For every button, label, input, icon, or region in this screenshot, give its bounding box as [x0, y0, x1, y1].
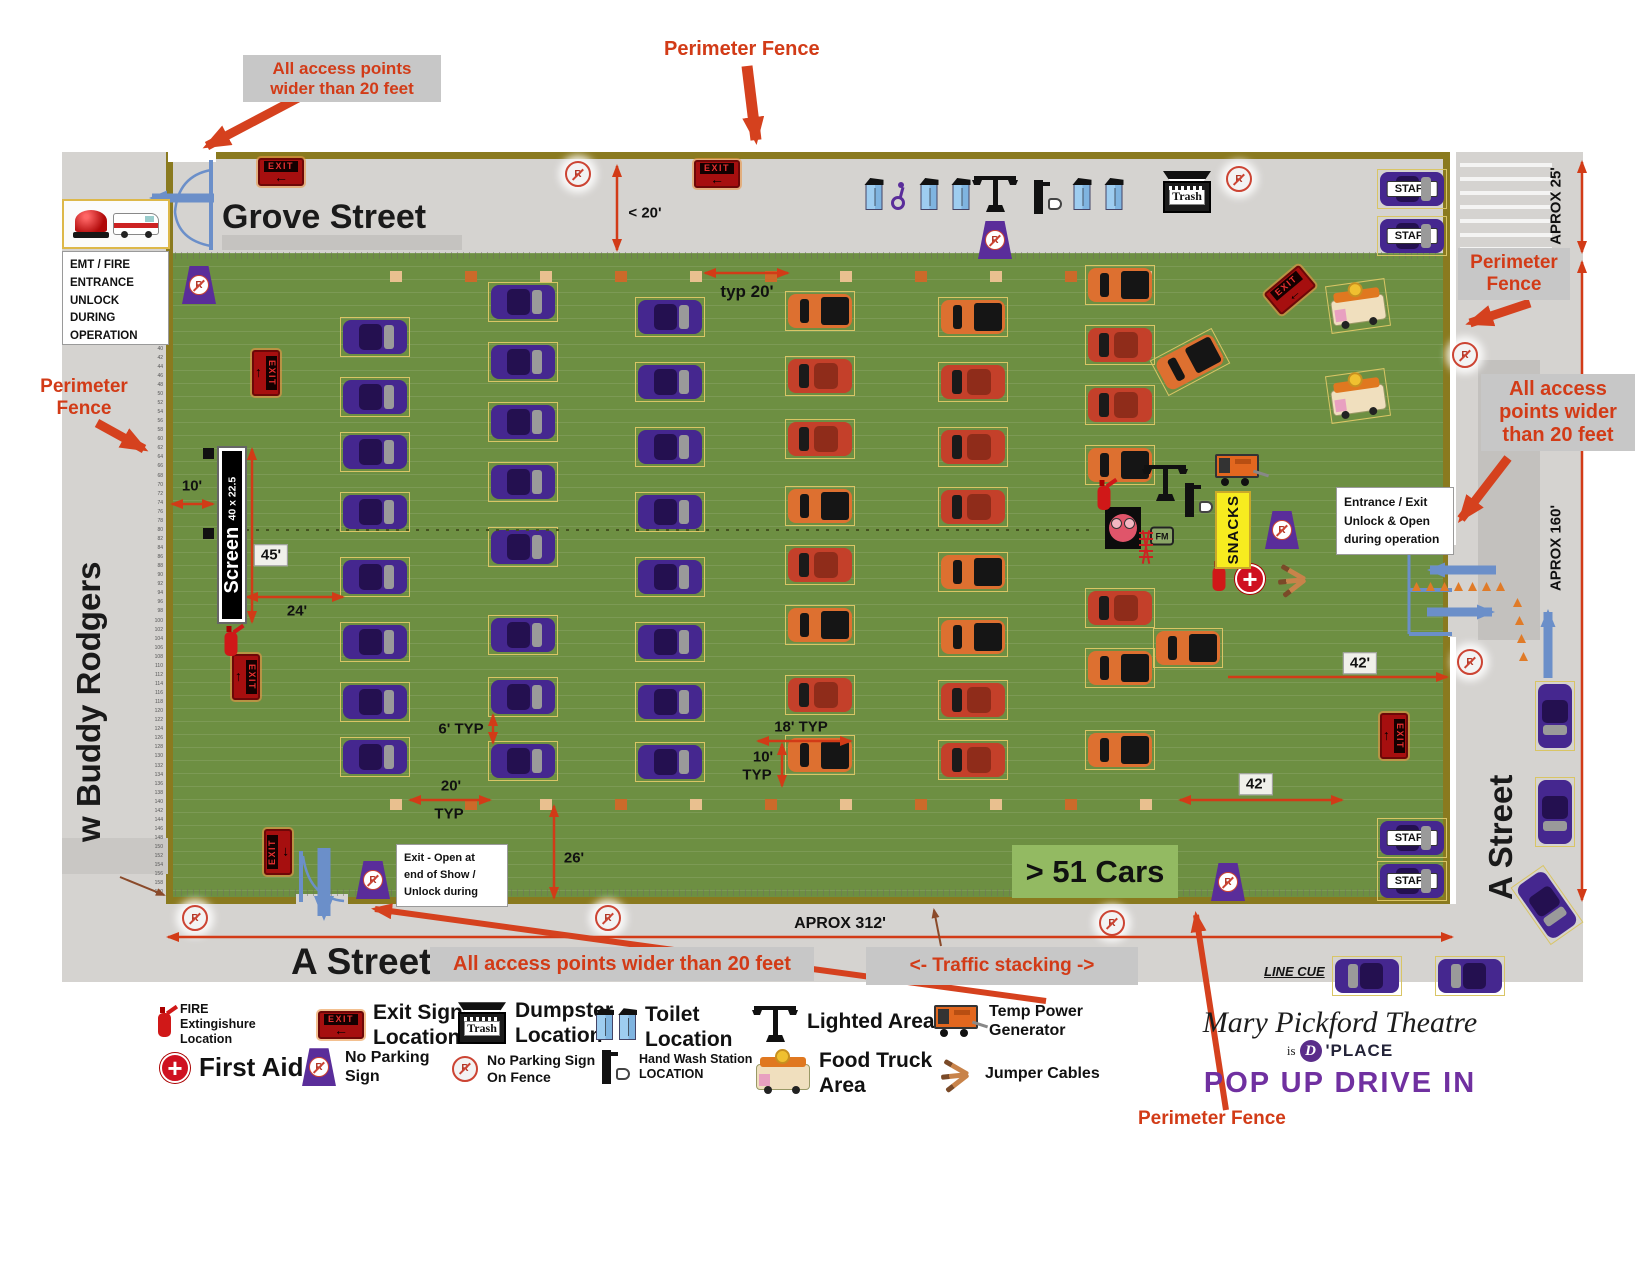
car-body [343, 740, 407, 774]
legend-item-exit-sign: EXIT←Exit Sign Location [318, 1000, 463, 1050]
dimension-label: 18' TYP [774, 719, 828, 736]
car-body [343, 685, 407, 719]
parked-car [340, 377, 410, 417]
car-body [1088, 651, 1152, 685]
fire-ext-location [1213, 567, 1226, 591]
wheelchair-location [888, 182, 912, 210]
food-truck [1325, 278, 1391, 334]
car-body [1088, 733, 1152, 767]
generator-icon [1215, 454, 1261, 486]
parked-car [938, 487, 1008, 527]
street-label-a-right: A Street [1482, 750, 1520, 900]
parked-car [938, 297, 1008, 337]
toilet-icon [1106, 184, 1123, 210]
no-parking-fence-icon: R [452, 1056, 478, 1082]
staff-label: STAFF [1387, 228, 1438, 244]
no-parking-sign-icon: R [302, 1048, 336, 1086]
parked-car [635, 492, 705, 532]
emt-fire-entrance-note: EMT / FIRE ENTRANCE UNLOCK DURING OPERAT… [62, 251, 169, 345]
parked-car [1153, 628, 1223, 668]
legend-label: FIRE Extingishure Location [180, 1002, 256, 1047]
road-marking [222, 235, 462, 250]
no-parking-fence-icon: R [452, 1056, 478, 1082]
first-aid-icon: + [160, 1053, 190, 1083]
fire-ext-location [225, 632, 238, 656]
car-body [941, 620, 1005, 654]
car-body [491, 680, 555, 714]
staff-label: STAFF [1387, 830, 1438, 846]
car-body [788, 738, 852, 772]
parked-car [488, 677, 558, 717]
brand-block: Mary Pickford Theatre is D 'PLACE POP UP… [1190, 1008, 1490, 1100]
parked-car [340, 557, 410, 597]
brand-is: is [1287, 1043, 1296, 1059]
row-marker [540, 271, 552, 282]
light-pole-location [972, 172, 1018, 212]
car-body [1335, 959, 1399, 993]
jumpers-location [1269, 563, 1313, 595]
brand-title: Mary Pickford Theatre [1190, 1008, 1490, 1038]
parked-car [785, 419, 855, 459]
car-body [638, 495, 702, 529]
legend-item-no-parking-fence: RNo Parking Sign On Fence [452, 1052, 595, 1086]
fire-extinguisher-icon [225, 632, 238, 656]
parked-car [488, 741, 558, 781]
dimension-label: 6' TYP [438, 721, 483, 738]
dimension-label: APROX 312' [794, 915, 886, 933]
parked-car [635, 622, 705, 662]
car-body [638, 560, 702, 594]
car-count-badge: > 51 Cars [1012, 845, 1178, 898]
row-marker [390, 271, 402, 282]
left-ruler: 2022242628303234363840424446485052545658… [141, 256, 163, 896]
car-body [1088, 328, 1152, 362]
toilet-location [953, 184, 970, 210]
row-marker [390, 799, 402, 810]
no-parking-fence-icon: R [1226, 166, 1252, 192]
parked-car [488, 402, 558, 442]
exit-sign: EXIT← [1380, 713, 1408, 759]
row-marker [990, 271, 1002, 282]
parked-car [1535, 777, 1575, 847]
parked-car [635, 362, 705, 402]
legend-item-toilet2: Toilet Location [596, 1002, 733, 1052]
fire-extinguisher-icon [158, 1013, 171, 1037]
no-parking-fence-sign: R [1099, 910, 1125, 936]
car-body [941, 743, 1005, 777]
row-marker [840, 271, 852, 282]
parked-car [1085, 730, 1155, 770]
label-access-right: All access points wider than 20 feet [1481, 374, 1635, 451]
car-body: STAFF [1380, 172, 1444, 206]
row-marker [915, 271, 927, 282]
row-marker [615, 799, 627, 810]
legend-item-trash: TrashDumpster Location [458, 998, 613, 1048]
label-perimeter-bottom: Perimeter Fence [1138, 1108, 1286, 1130]
no-parking-sign: R [1265, 511, 1299, 549]
toilet-location [1074, 184, 1091, 210]
screen-label: Screen [221, 527, 244, 594]
car-body [1438, 959, 1502, 993]
dimension-label: APROX 160' [1548, 505, 1565, 591]
parked-car [488, 342, 558, 382]
generator-icon [934, 1005, 980, 1037]
car-body [1156, 631, 1220, 665]
parked-car [785, 486, 855, 526]
legend-item-food-truck: Food Truck Area [756, 1048, 932, 1098]
car-body [638, 430, 702, 464]
parked-car [635, 742, 705, 782]
toilet-icon [953, 184, 970, 210]
brand-subtitle: POP UP DRIVE IN [1190, 1067, 1490, 1100]
light-pole-icon [752, 1002, 798, 1042]
exit-sign-icon: EXIT← [1380, 713, 1408, 759]
car-body [941, 430, 1005, 464]
no-parking-sign-icon: R [978, 221, 1012, 259]
parked-car [785, 545, 855, 585]
car-body [1538, 684, 1572, 748]
staff-car: STAFF [1377, 216, 1447, 256]
toilet-icon [866, 184, 883, 210]
row-marker [690, 271, 702, 282]
parked-car [340, 317, 410, 357]
exit-sign: EXIT← [258, 158, 304, 186]
legend-label: Temp Power Generator [989, 1002, 1083, 1040]
car-body [788, 359, 852, 393]
car-body [941, 683, 1005, 717]
parked-car [785, 605, 855, 645]
label-perimeter-top: Perimeter Fence [664, 38, 820, 61]
fire-ext-location [1098, 486, 1111, 510]
legend-item-no-parking: RNo Parking Sign [302, 1048, 429, 1086]
row-marker [1065, 271, 1077, 282]
car-body [491, 530, 555, 564]
staff-label: STAFF [1387, 873, 1438, 889]
row-marker [465, 799, 477, 810]
parked-car [1085, 648, 1155, 688]
car-body [788, 422, 852, 456]
no-parking-fence-icon: R [1452, 342, 1478, 368]
parked-car [635, 682, 705, 722]
car-body [343, 380, 407, 414]
dumpster-icon: Trash [458, 1002, 506, 1044]
hand-wash-location [1032, 180, 1062, 214]
snacks-label: SNACKS [1225, 495, 1242, 564]
food-truck-icon [756, 1052, 810, 1094]
dimension-label: 20' [441, 778, 461, 795]
legend-item-light-pole: Lighted Area [752, 1002, 935, 1042]
car-body [1088, 591, 1152, 625]
car-body [788, 678, 852, 712]
car-body: STAFF [1380, 821, 1444, 855]
parked-car [340, 682, 410, 722]
row-marker [465, 271, 477, 282]
parked-car [938, 740, 1008, 780]
parked-car [488, 282, 558, 322]
no-parking-sign-icon: R [356, 861, 390, 899]
legend-item-hand-wash: Hand Wash Station LOCATION [600, 1050, 752, 1084]
parked-car [938, 552, 1008, 592]
dimension-label: typ 20' [720, 282, 773, 302]
parked-car [785, 291, 855, 331]
car-body: STAFF [1380, 219, 1444, 253]
label-access-top-left: All access points wider than 20 feet [243, 55, 441, 102]
exit-open-note: Exit - Open at end of Show / Unlock duri… [396, 844, 508, 907]
car-body [491, 285, 555, 319]
row-marker [990, 799, 1002, 810]
legend-label: Toilet Location [645, 1002, 733, 1052]
car-body [1538, 780, 1572, 844]
ambulance-icon [113, 213, 159, 235]
no-parking-icon: R [302, 1048, 336, 1086]
light-pole-icon [752, 1002, 798, 1042]
parked-car [1535, 681, 1575, 751]
jumpers-icon [932, 1058, 976, 1090]
exit-sign-icon: EXIT← [694, 160, 740, 188]
legend-label: Exit Sign Location [373, 1000, 463, 1050]
toilet-icon [921, 184, 938, 210]
hand-wash-icon [600, 1050, 630, 1084]
legend-label: No Parking Sign [345, 1048, 429, 1086]
parked-car [785, 356, 855, 396]
toilet-location [866, 184, 883, 210]
toilet2-icon [596, 1014, 636, 1040]
label-perimeter-left: Perimeter Fence [28, 376, 140, 420]
car-body [491, 618, 555, 652]
no-parking-sign: R [356, 861, 390, 899]
siren-icon [73, 210, 109, 238]
car-body [638, 365, 702, 399]
parked-car [785, 735, 855, 775]
row-marker [690, 799, 702, 810]
dplace-icon: D [1300, 1040, 1322, 1062]
no-parking-sign-icon: R [1211, 863, 1245, 901]
no-parking-fence-sign: R [595, 905, 621, 931]
parked-car [488, 462, 558, 502]
no-parking-sign: R [182, 266, 216, 304]
dimension-label: 24' [287, 603, 307, 620]
no-parking-fence-sign: R [1452, 342, 1478, 368]
no-parking-fence-sign: R [1457, 649, 1483, 675]
car-body [1088, 388, 1152, 422]
parked-car [340, 737, 410, 777]
toilet-location [1106, 184, 1123, 210]
ruler-ticks-top [175, 252, 1441, 259]
label-traffic-stacking: <- Traffic stacking -> [866, 947, 1138, 985]
movie-screen: Screen 40 x 22.5 [217, 446, 247, 624]
parked-car [488, 527, 558, 567]
legend-label: Food Truck Area [819, 1048, 932, 1098]
exit-sign: EXIT← [694, 160, 740, 188]
car-body [491, 465, 555, 499]
fire-extinguisher-icon [1213, 567, 1226, 591]
street-label-buddy-rodgers: w Buddy Rodgers [70, 542, 108, 842]
parked-car [340, 622, 410, 662]
car-body [343, 495, 407, 529]
light-pole-icon [1142, 461, 1188, 501]
no-parking-sign-icon: R [1265, 511, 1299, 549]
toilet-location [921, 184, 938, 210]
row-marker [915, 799, 927, 810]
dimension-label: 10' [182, 478, 202, 495]
parked-car [340, 492, 410, 532]
car-body [638, 625, 702, 659]
row-marker [765, 271, 777, 282]
parked-car [1085, 325, 1155, 365]
legend-label: First Aid [199, 1052, 303, 1083]
dimension-label: 45' [254, 544, 288, 566]
car-body [343, 320, 407, 354]
exit-sign-icon: EXIT← [252, 350, 280, 396]
car-body [343, 560, 407, 594]
dimension-label: 42' [1343, 652, 1377, 674]
parked-car [635, 297, 705, 337]
label-access-bottom: All access points wider than 20 feet [430, 947, 814, 981]
legend-item-jumpers: Jumper Cables [932, 1058, 1100, 1090]
street-label-grove: Grove Street [222, 198, 426, 237]
legend-item-first-aid: +First Aid [160, 1052, 303, 1083]
crosswalk-stripes [1460, 163, 1552, 249]
dimension-label: < 20' [628, 205, 661, 222]
row-marker [1140, 799, 1152, 810]
staff-car: STAFF [1377, 818, 1447, 858]
no-parking-fence-icon: R [1099, 910, 1125, 936]
car-body [941, 365, 1005, 399]
hand-wash-icon [600, 1050, 630, 1084]
exit-sign-icon: EXIT← [258, 158, 304, 186]
parked-car [785, 675, 855, 715]
car-body [788, 294, 852, 328]
car-body [941, 490, 1005, 524]
first-aid-icon: + [160, 1053, 190, 1083]
exit-sign-icon: EXIT← [232, 654, 260, 700]
fire-ext-icon [158, 1013, 171, 1037]
no-parking-fence-sign: R [1226, 166, 1252, 192]
label-perimeter-right: Perimeter Fence [1458, 248, 1570, 300]
parked-car [938, 362, 1008, 402]
toilet-icon [596, 1014, 613, 1040]
screen-size-label: 40 x 22.5 [226, 477, 238, 521]
car-body [788, 489, 852, 523]
parked-car [635, 427, 705, 467]
legend-label: No Parking Sign On Fence [487, 1052, 595, 1086]
gate-gap-right [1448, 545, 1458, 637]
parked-car [1435, 956, 1505, 996]
no-parking-fence-sign: R [565, 161, 591, 187]
no-parking-fence-icon: R [182, 905, 208, 931]
parked-car [488, 615, 558, 655]
staff-car: STAFF [1377, 861, 1447, 901]
food-truck-icon [756, 1052, 810, 1094]
car-body [941, 300, 1005, 334]
entrance-exit-note: Entrance / Exit Unlock & Open during ope… [1336, 487, 1454, 555]
car-body [343, 435, 407, 469]
brand-place: 'PLACE [1326, 1041, 1394, 1061]
exit-sign-icon: EXIT← [318, 1011, 364, 1039]
car-body [491, 405, 555, 439]
no-parking-fence-icon: R [565, 161, 591, 187]
exit-sign-icon: EXIT← [318, 1011, 364, 1039]
no-parking-sign-icon: R [182, 266, 216, 304]
row-marker [615, 271, 627, 282]
light-pole-icon [972, 172, 1018, 212]
jumper-cables-icon [932, 1058, 976, 1090]
row-marker [765, 799, 777, 810]
site-plan: 2022242628303234363840424446485052545658… [0, 0, 1650, 1275]
no-parking-fence-icon: R [595, 905, 621, 931]
exit-sign-icon: EXIT← [264, 829, 292, 875]
toilet-icon [1074, 184, 1091, 210]
light-pole-location [1142, 461, 1188, 501]
car-body [788, 608, 852, 642]
dimension-label: 10' [753, 749, 773, 766]
parked-car [938, 427, 1008, 467]
gate-gap-top [168, 150, 216, 162]
parked-car [1085, 588, 1155, 628]
exit-sign: EXIT← [264, 829, 292, 875]
snacks-stand: SNACKS [1215, 491, 1251, 569]
row-marker [540, 799, 552, 810]
legend-label: Hand Wash Station LOCATION [639, 1052, 752, 1082]
legend-label: Jumper Cables [985, 1064, 1100, 1083]
parked-car [1332, 956, 1402, 996]
trash-icon: Trash [458, 1002, 506, 1044]
dimension-label: 42' [1239, 773, 1273, 795]
no-parking-fence-icon: R [1457, 649, 1483, 675]
no-parking-sign: R [978, 221, 1012, 259]
hand-wash-location [1183, 483, 1213, 517]
radio-tower-icon [1136, 530, 1156, 564]
tower-location [1136, 530, 1156, 564]
jumper-cables-icon [1269, 563, 1313, 595]
car-body [1088, 268, 1152, 302]
exit-sign: EXIT← [232, 654, 260, 700]
food-truck-icon [1328, 371, 1387, 420]
dimension-label: 26' [564, 850, 584, 867]
hand-wash-icon [1032, 180, 1062, 214]
parked-car [1085, 385, 1155, 425]
food-truck [1325, 368, 1391, 424]
line-cue-label: LINE CUE [1264, 964, 1325, 979]
legend-label: Lighted Area [807, 1009, 935, 1034]
row-marker [840, 799, 852, 810]
generator-location [1215, 454, 1261, 486]
car-body [638, 300, 702, 334]
no-parking-sign: R [1211, 863, 1245, 901]
dimension-label: TYP [434, 806, 463, 823]
hand-wash-icon [1183, 483, 1213, 517]
car-body [941, 555, 1005, 589]
car-body [638, 685, 702, 719]
fire-extinguisher-icon [1098, 486, 1111, 510]
parked-car [938, 680, 1008, 720]
parked-car [938, 617, 1008, 657]
accessible-icon [888, 182, 912, 210]
food-truck-icon [1328, 281, 1387, 330]
legend-item-generator: Temp Power Generator [934, 1002, 1083, 1040]
parked-car [635, 557, 705, 597]
no-parking-fence-sign: R [182, 905, 208, 931]
car-body [638, 745, 702, 779]
car-body [343, 625, 407, 659]
emt-icons-box [62, 199, 170, 249]
generator-icon [934, 1005, 980, 1037]
dimension-label: APROX 25' [1548, 167, 1565, 245]
trash-location: Trash [1163, 171, 1211, 213]
street-label-a-bottom: A Street [291, 941, 432, 983]
row-marker [1065, 799, 1077, 810]
dumpster-icon: Trash [1163, 171, 1211, 213]
